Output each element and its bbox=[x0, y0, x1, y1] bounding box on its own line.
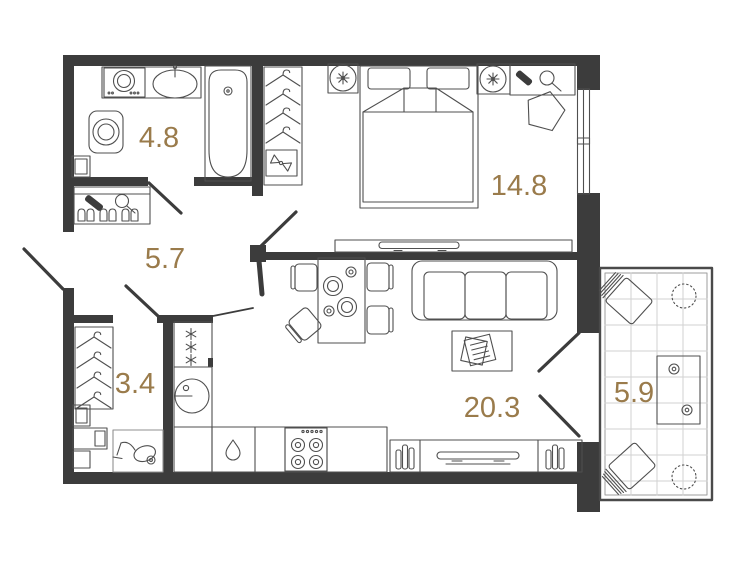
magazine-icon bbox=[464, 334, 496, 366]
chair-icon bbox=[291, 264, 317, 291]
room-label-hallway: 5.7 bbox=[145, 243, 185, 275]
floor-plan: 4.8 5.7 14.8 3.4 20.3 5.9 bbox=[0, 0, 736, 562]
gift-box-icon bbox=[266, 150, 297, 176]
wall-bathroom-bottom-left bbox=[63, 177, 148, 186]
fridge-icon bbox=[174, 322, 213, 367]
kitchen-opening-line bbox=[213, 308, 253, 316]
pillow-icon bbox=[368, 68, 410, 89]
lamp-icon bbox=[330, 65, 356, 91]
closet-door-leaf bbox=[126, 286, 158, 316]
wardrobe-icon bbox=[264, 67, 302, 185]
bed-icon bbox=[360, 66, 478, 208]
shoe-icon bbox=[87, 209, 94, 221]
lamp-icon bbox=[480, 66, 506, 92]
toilet-icon bbox=[89, 111, 123, 153]
duvet-fold bbox=[363, 88, 473, 112]
plate-icon bbox=[324, 277, 343, 296]
books-icon bbox=[396, 445, 414, 469]
snowflake-icon bbox=[186, 355, 196, 366]
sofa-icon bbox=[412, 261, 557, 320]
bedroom-tv bbox=[335, 240, 572, 252]
washing-machine-icon bbox=[104, 68, 145, 97]
room-label-bathroom: 4.8 bbox=[139, 122, 179, 154]
wall-right-middle bbox=[577, 193, 600, 333]
hanger-icon bbox=[77, 392, 111, 408]
pouf-icon bbox=[522, 87, 568, 133]
garden-table-icon bbox=[657, 356, 700, 424]
wall-right-above-window bbox=[577, 55, 600, 90]
counter-corner bbox=[174, 427, 212, 472]
shoe-icon bbox=[78, 209, 85, 221]
kitchen-counter bbox=[212, 427, 387, 472]
wall-left-upper bbox=[63, 55, 74, 232]
area-labels: 4.8 5.7 14.8 3.4 20.3 5.9 bbox=[115, 122, 654, 424]
tv-icon bbox=[379, 242, 459, 249]
sink-icon bbox=[153, 65, 197, 98]
room-label-bedroom: 14.8 bbox=[491, 170, 547, 202]
bedroom-window bbox=[578, 89, 590, 194]
wall-bottom bbox=[63, 472, 579, 484]
hanger-icon bbox=[77, 352, 111, 368]
brush-icon bbox=[515, 70, 533, 87]
hanger-icon bbox=[77, 372, 111, 388]
books-icon bbox=[546, 445, 564, 469]
wall-bedroom-living-divider bbox=[263, 252, 577, 260]
snowflake-icon bbox=[186, 329, 196, 340]
coffee-table-icon bbox=[452, 331, 512, 371]
nightstand-left bbox=[328, 64, 358, 93]
room-label-balcony: 5.9 bbox=[614, 377, 654, 409]
cup-icon bbox=[346, 267, 356, 277]
tv-icon bbox=[437, 452, 519, 464]
living-room bbox=[284, 258, 557, 371]
floor-box-icon bbox=[72, 156, 90, 177]
balcony-door-leaf-upper bbox=[539, 333, 579, 371]
wall-shelf bbox=[510, 59, 573, 63]
bathtub-icon bbox=[205, 66, 251, 181]
duvet bbox=[363, 112, 473, 202]
hanger-icon bbox=[77, 332, 111, 348]
hanger-icon bbox=[266, 70, 300, 86]
vacuum-icon bbox=[113, 430, 163, 472]
balcony-door-leaf-lower bbox=[540, 396, 579, 436]
wall-stub-below-node bbox=[259, 261, 262, 294]
boxes-icon bbox=[73, 405, 107, 468]
room-label-closet: 3.4 bbox=[115, 368, 155, 400]
plant-icon bbox=[672, 465, 696, 489]
fridge-handle bbox=[208, 358, 213, 367]
chair-icon bbox=[367, 306, 393, 334]
shoe-icon bbox=[122, 209, 129, 221]
hanger-icon bbox=[266, 127, 300, 143]
wall-right-lower-pillar bbox=[577, 442, 600, 512]
dining-table-icon bbox=[318, 258, 365, 343]
bedroom bbox=[264, 59, 575, 252]
hallway bbox=[74, 187, 150, 224]
tv-stand-icon bbox=[390, 440, 582, 472]
shoe-icon bbox=[109, 209, 116, 221]
wall-bathroom-bedroom bbox=[252, 55, 263, 196]
wall-closet-kitchen-divider bbox=[163, 315, 173, 472]
hanger-icon bbox=[266, 108, 300, 124]
bathroom-door-leaf bbox=[149, 183, 181, 213]
shoe-icon bbox=[100, 209, 107, 221]
drop-icon bbox=[226, 440, 240, 460]
entrance-door-leaf bbox=[24, 249, 63, 289]
chair-icon bbox=[284, 306, 323, 345]
plate-icon bbox=[338, 298, 357, 317]
pillow-icon bbox=[427, 68, 469, 89]
garden-chair-icon bbox=[600, 442, 656, 497]
wall-closet-top bbox=[63, 315, 113, 323]
shoe-rack-icon bbox=[74, 187, 150, 224]
cup-icon bbox=[324, 306, 334, 316]
dressing-table-icon bbox=[510, 59, 575, 95]
snowflake-icon bbox=[186, 342, 196, 353]
kitchen bbox=[174, 322, 582, 472]
stove-icon bbox=[285, 428, 327, 471]
room-label-kitchen-living: 20.3 bbox=[464, 392, 520, 424]
chair-icon bbox=[367, 263, 393, 291]
round-sink-icon bbox=[174, 367, 212, 427]
mirror-icon bbox=[540, 71, 561, 91]
plant-icon bbox=[672, 284, 696, 308]
bedroom-door-leaf bbox=[259, 212, 296, 248]
nightstand-right bbox=[477, 64, 510, 94]
floor-plan-drawing: 4.8 5.7 14.8 3.4 20.3 5.9 bbox=[0, 0, 736, 562]
hanger-icon bbox=[266, 89, 300, 105]
